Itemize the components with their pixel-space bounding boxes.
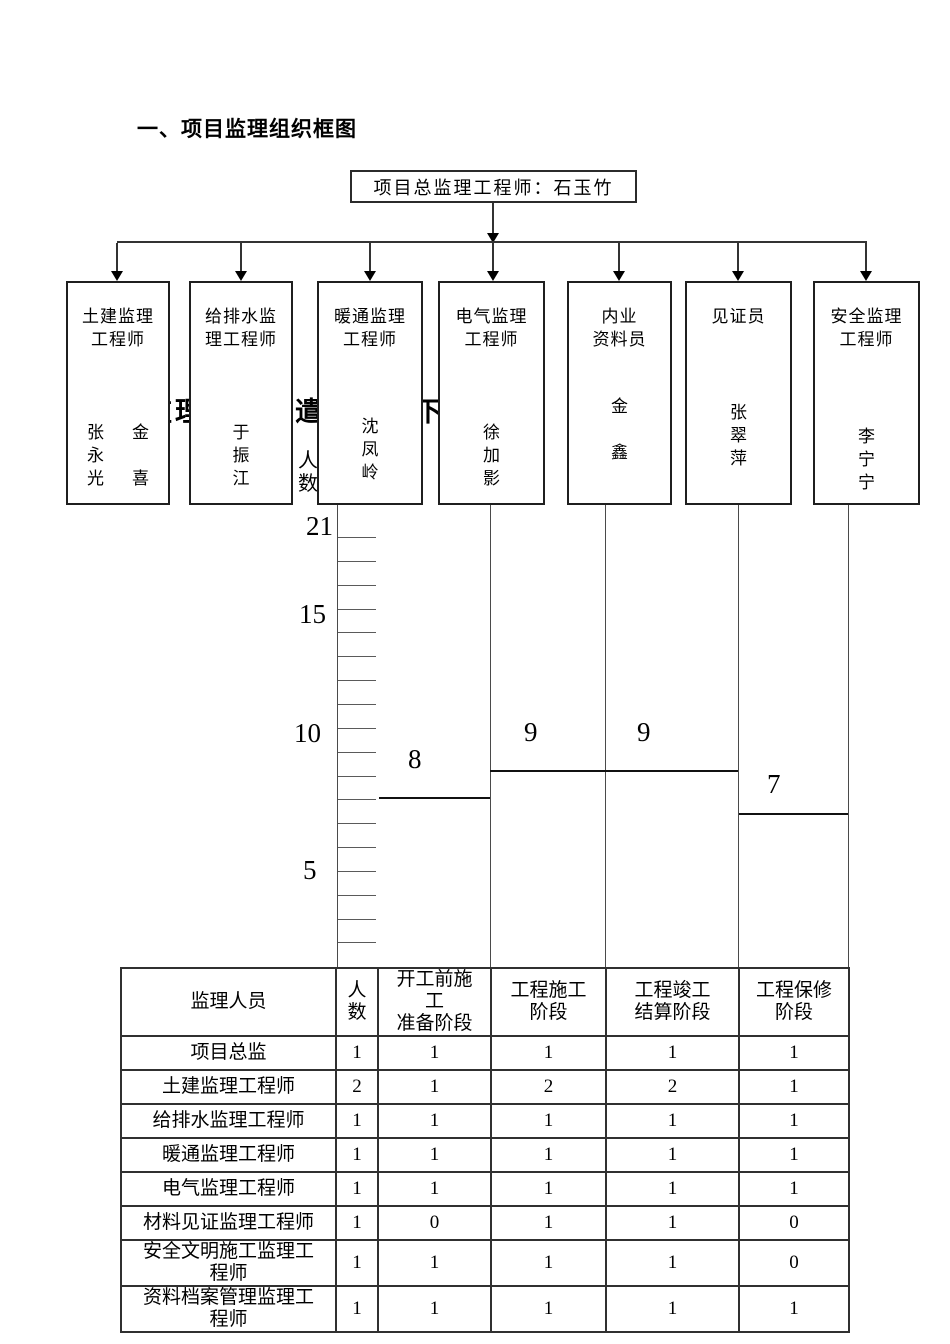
- bar-value-label: 7: [767, 769, 781, 800]
- axis-tick: [338, 585, 376, 586]
- cell-value: 0: [739, 1206, 849, 1240]
- org-box-title: 暖通监理 工程师: [319, 305, 421, 351]
- cell-value: 2: [336, 1070, 378, 1104]
- cell-value: 1: [336, 1206, 378, 1240]
- cell-value: 1: [336, 1104, 378, 1138]
- bar-value-label: 9: [524, 717, 538, 748]
- bar-value-label: 9: [637, 717, 651, 748]
- arrow-down-icon: [111, 271, 123, 281]
- arrow-down-icon: [364, 271, 376, 281]
- row-label: 电气监理工程师: [121, 1172, 336, 1206]
- connector-drop-2: [240, 243, 242, 272]
- connector-drop-7: [865, 243, 867, 272]
- cell-value: 1: [739, 1138, 849, 1172]
- org-root-label: 项目总监理工程师：石玉竹: [374, 174, 614, 200]
- org-box-title: 电气监理 工程师: [440, 305, 543, 351]
- org-box-title: 给排水监 理工程师: [191, 305, 291, 351]
- axis-tick: [338, 537, 376, 538]
- cell-value: 1: [491, 1206, 606, 1240]
- axis-tick: [338, 847, 376, 848]
- page-title: 一、项目监理组织框图: [137, 113, 357, 143]
- col-header-headcount: 人 数: [336, 968, 378, 1036]
- cell-value: 1: [336, 1240, 378, 1286]
- axis-tick: [338, 919, 376, 920]
- org-box-hvac: 暖通监理 工程师 沈 凤 岭: [317, 281, 423, 505]
- org-box-name: 沈 凤 岭: [362, 415, 379, 484]
- y-tick-label: 5: [303, 855, 317, 886]
- row-label: 暖通监理工程师: [121, 1138, 336, 1172]
- col-header-settlement-phase: 工程竣工 结算阶段: [606, 968, 739, 1036]
- cell-value: 2: [606, 1070, 739, 1104]
- axis-tick: [338, 776, 376, 777]
- table-row: 给排水监理工程师 1 1 1 1 1: [121, 1104, 849, 1138]
- org-box-title: 土建监理 工程师: [68, 305, 168, 351]
- cell-value: 1: [491, 1036, 606, 1070]
- arrow-down-icon: [613, 271, 625, 281]
- axis-tick: [338, 632, 376, 633]
- axis-tick: [338, 823, 376, 824]
- cell-value: 1: [336, 1286, 378, 1332]
- cell-value: 1: [739, 1036, 849, 1070]
- y-tick-label: 21: [306, 511, 333, 542]
- bar-warranty-phase: [739, 813, 848, 815]
- table-row: 材料见证监理工程师 1 0 1 1 0: [121, 1206, 849, 1240]
- table-header-row: 监理人员 人 数 开工前施 工 准备阶段 工程施工 阶段 工程竣工 结算阶段 工…: [121, 968, 849, 1036]
- table-row: 项目总监 1 1 1 1 1: [121, 1036, 849, 1070]
- cell-value: 2: [491, 1070, 606, 1104]
- org-box-name: 徐 加 影: [483, 421, 500, 490]
- table-row: 暖通监理工程师 1 1 1 1 1: [121, 1138, 849, 1172]
- connector-drop-5: [618, 243, 620, 272]
- axis-tick: [338, 942, 376, 943]
- org-box-documents: 内业 资料员 金 鑫: [567, 281, 672, 505]
- y-tick-label: 15: [299, 599, 326, 630]
- axis-tick: [338, 561, 376, 562]
- org-box-title: 内业 资料员: [569, 305, 670, 351]
- cell-value: 1: [606, 1036, 739, 1070]
- cell-value: 1: [606, 1172, 739, 1206]
- cell-value: 1: [378, 1172, 491, 1206]
- bar-construction-settlement-phase: [490, 770, 738, 772]
- row-label: 安全文明施工监理工 程师: [121, 1240, 336, 1286]
- cell-value: 1: [606, 1286, 739, 1332]
- axis-tick: [338, 752, 376, 753]
- cell-value: 1: [336, 1036, 378, 1070]
- cell-value: 1: [606, 1206, 739, 1240]
- chart-column-line: [490, 505, 491, 967]
- org-box-name: 金 鑫: [611, 395, 628, 464]
- bar-prep-phase: [379, 797, 490, 799]
- staffing-table: 监理人员 人 数 开工前施 工 准备阶段 工程施工 阶段 工程竣工 结算阶段 工…: [120, 967, 850, 1333]
- connector-drop-3: [369, 243, 371, 272]
- col-header-warranty-phase: 工程保修 阶段: [739, 968, 849, 1036]
- cell-value: 1: [739, 1070, 849, 1104]
- axis-tick: [338, 728, 376, 729]
- axis-tick: [338, 799, 376, 800]
- org-box-title: 安全监理 工程师: [815, 305, 918, 351]
- chart-y-axis-line: [337, 505, 338, 967]
- axis-tick: [338, 680, 376, 681]
- cell-value: 0: [378, 1206, 491, 1240]
- chart-column-line: [738, 505, 739, 967]
- row-label: 土建监理工程师: [121, 1070, 336, 1104]
- cell-value: 1: [606, 1138, 739, 1172]
- connector-drop-4: [492, 243, 494, 272]
- arrow-down-icon: [235, 271, 247, 281]
- cell-value: 1: [491, 1172, 606, 1206]
- connector-root-shaft: [492, 203, 494, 234]
- org-box-electrical: 电气监理 工程师 徐 加 影: [438, 281, 545, 505]
- cell-value: 1: [491, 1240, 606, 1286]
- table-row: 土建监理工程师 2 1 2 2 1: [121, 1070, 849, 1104]
- table-row: 安全文明施工监理工 程师 1 1 1 1 0: [121, 1240, 849, 1286]
- org-box-name: 张 永 光: [87, 421, 104, 490]
- org-box-safety: 安全监理 工程师 李 宁 宁: [813, 281, 920, 505]
- axis-tick: [338, 871, 376, 872]
- org-box-name: 于 振 江: [233, 421, 250, 490]
- org-root-box: 项目总监理工程师：石玉竹: [350, 170, 637, 203]
- axis-tick: [338, 895, 376, 896]
- cell-value: 1: [336, 1138, 378, 1172]
- org-box-name: 李 宁 宁: [858, 425, 875, 494]
- cell-value: 1: [491, 1138, 606, 1172]
- table-row: 资料档案管理监理工 程师 1 1 1 1 1: [121, 1286, 849, 1332]
- axis-tick: [338, 609, 376, 610]
- cell-value: 1: [336, 1172, 378, 1206]
- row-label: 资料档案管理监理工 程师: [121, 1286, 336, 1332]
- connector-drop-6: [737, 243, 739, 272]
- col-header-construction-phase: 工程施工 阶段: [491, 968, 606, 1036]
- cell-value: 1: [378, 1240, 491, 1286]
- cell-value: 1: [606, 1104, 739, 1138]
- chart-column-line: [848, 505, 849, 967]
- cell-value: 1: [378, 1286, 491, 1332]
- cell-value: 1: [739, 1172, 849, 1206]
- chart-column-line: [605, 505, 606, 967]
- document-page: 一、项目监理组织框图 监理人员派遣计划如下 人 数 项目总监理工程师：石玉竹 土…: [0, 0, 950, 1344]
- axis-tick: [338, 656, 376, 657]
- connector-drop-1: [116, 243, 118, 272]
- row-label: 材料见证监理工程师: [121, 1206, 336, 1240]
- cell-value: 1: [378, 1104, 491, 1138]
- row-label: 给排水监理工程师: [121, 1104, 336, 1138]
- cell-value: 0: [739, 1240, 849, 1286]
- table-row: 电气监理工程师 1 1 1 1 1: [121, 1172, 849, 1206]
- cell-value: 1: [491, 1104, 606, 1138]
- bar-value-label: 8: [408, 744, 422, 775]
- cell-value: 1: [739, 1104, 849, 1138]
- axis-tick: [338, 704, 376, 705]
- org-box-witness: 见证员 张 翠 萍: [685, 281, 792, 505]
- arrow-down-icon: [732, 271, 744, 281]
- col-header-personnel: 监理人员: [121, 968, 336, 1036]
- org-box-name: 金 喜: [132, 421, 149, 490]
- chart-y-axis-title: 人 数: [297, 450, 319, 496]
- cell-value: 1: [378, 1036, 491, 1070]
- arrow-down-icon: [487, 271, 499, 281]
- arrow-down-icon: [860, 271, 872, 281]
- org-box-name: 张 翠 萍: [730, 401, 747, 470]
- col-header-prep-phase: 开工前施 工 准备阶段: [378, 968, 491, 1036]
- y-tick-label: 10: [294, 718, 321, 749]
- org-box-plumbing: 给排水监 理工程师 于 振 江: [189, 281, 293, 505]
- cell-value: 1: [739, 1286, 849, 1332]
- cell-value: 1: [378, 1138, 491, 1172]
- row-label: 项目总监: [121, 1036, 336, 1070]
- cell-value: 1: [378, 1070, 491, 1104]
- cell-value: 1: [491, 1286, 606, 1332]
- org-box-title: 见证员: [687, 305, 790, 328]
- org-box-civil: 土建监理 工程师 张 永 光 金 喜: [66, 281, 170, 505]
- cell-value: 1: [606, 1240, 739, 1286]
